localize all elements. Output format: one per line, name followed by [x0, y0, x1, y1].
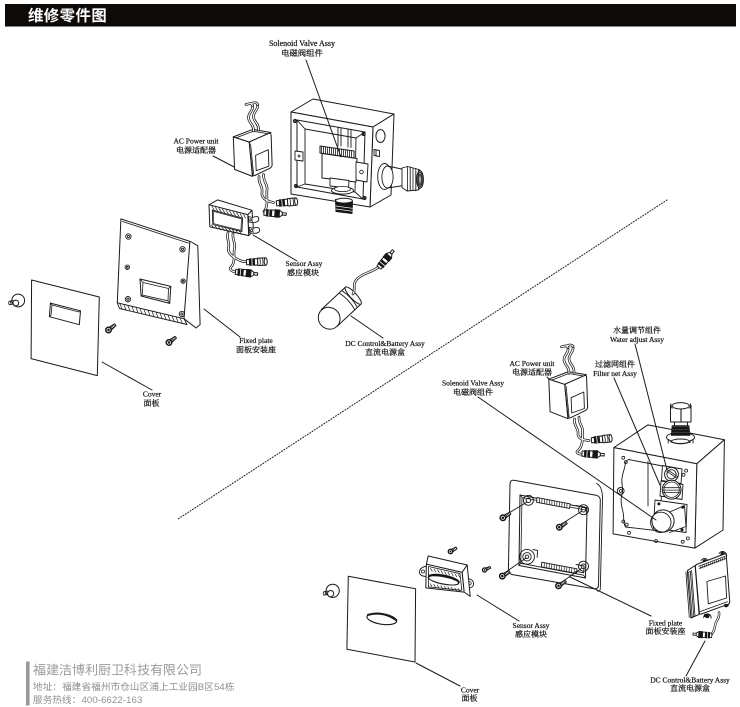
svg-text:电源适配器: 电源适配器: [512, 368, 552, 377]
svg-text:Cover: Cover: [143, 390, 162, 399]
svg-text:感应模块: 感应模块: [515, 630, 547, 639]
svg-text:面板安装座: 面板安装座: [646, 627, 686, 636]
svg-text:面板: 面板: [144, 399, 160, 408]
svg-text:电磁阀组件: 电磁阀组件: [281, 48, 323, 58]
svg-text:过滤网组件: 过滤网组件: [595, 360, 635, 369]
svg-text:Sensor Assy: Sensor Assy: [286, 259, 323, 268]
svg-text:DC Control&Battery Assy: DC Control&Battery Assy: [345, 339, 425, 348]
svg-text:服务热线：400-6622-163: 服务热线：400-6622-163: [33, 694, 142, 706]
svg-text:电磁阀组件: 电磁阀组件: [453, 388, 493, 397]
svg-text:感应模块: 感应模块: [287, 269, 319, 278]
svg-text:Water adjust Assy: Water adjust Assy: [610, 335, 664, 344]
svg-text:Fixed plate: Fixed plate: [239, 336, 273, 345]
svg-text:直流电源盒: 直流电源盒: [670, 684, 710, 693]
svg-text:Filter net Assy: Filter net Assy: [593, 369, 637, 378]
svg-text:面板: 面板: [462, 694, 478, 703]
svg-text:地址：福建省福州市仓山区浦上工业园B区54栋: 地址：福建省福州市仓山区浦上工业园B区54栋: [32, 681, 235, 693]
svg-text:福建洁博利厨卫科技有限公司: 福建洁博利厨卫科技有限公司: [32, 663, 202, 678]
svg-text:维修零件图: 维修零件图: [28, 7, 107, 25]
svg-text:直流电源盒: 直流电源盒: [365, 348, 405, 357]
svg-text:AC Power unit: AC Power unit: [174, 137, 220, 146]
svg-text:面板安装座: 面板安装座: [236, 346, 276, 355]
svg-text:Solenoid Valve Assy: Solenoid Valve Assy: [442, 379, 504, 388]
svg-text:AC Power unit: AC Power unit: [510, 359, 556, 368]
svg-text:Sensor Assy: Sensor Assy: [513, 621, 550, 630]
svg-text:电源适配器: 电源适配器: [176, 146, 216, 155]
svg-text:Solenoid Valve Assy: Solenoid Valve Assy: [269, 39, 335, 48]
svg-text:水量调节组件: 水量调节组件: [613, 326, 661, 335]
